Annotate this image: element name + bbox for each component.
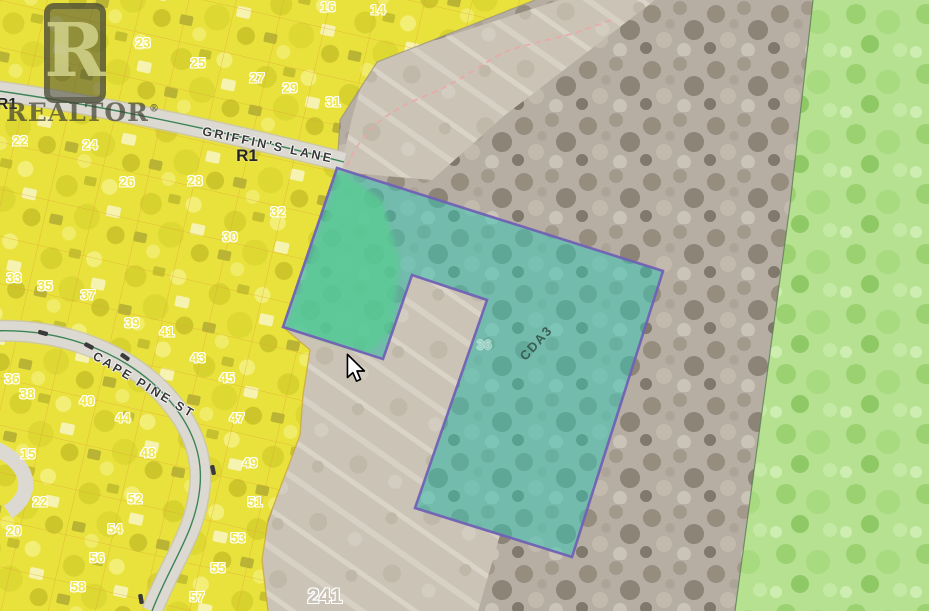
lot-number-label: 41 [159,325,174,340]
lot-number-label: 30 [222,230,237,245]
lot-number-label: 22 [12,134,27,149]
street-name-label: GRIFFIN'S LANE [201,124,335,166]
lot-number-label: 40 [79,394,94,409]
lot-number-label: 57 [189,590,204,605]
lot-number-label: 56 [89,551,104,566]
lot-number-label: 29 [282,81,297,96]
mouse-cursor-icon [346,353,368,383]
lot-number-label: 37 [80,288,95,303]
lot-number-label: 45 [219,371,234,386]
lot-number-label: 28 [187,174,202,189]
lot-number-label: 31 [325,95,340,110]
lot-number-label: 26 [119,175,134,190]
map-labels: 1614232527293122242628323033353739414345… [0,0,929,611]
lot-number-label: 14 [370,3,385,18]
lot-number-label: 25 [190,56,205,71]
lot-number-label: 15 [20,447,35,462]
lot-number-label: 51 [247,495,262,510]
lot-number-label: 20 [6,524,21,539]
lot-number-label: 52 [127,492,142,507]
lot-number-label: 24 [82,138,97,153]
lot-number-label: 49 [242,456,257,471]
lot-number-label: 22 [32,495,47,510]
lot-number-label: 36 [476,338,491,353]
lot-number-label: 39 [124,316,139,331]
lot-number-label: 47 [229,411,244,426]
map-viewport[interactable]: 1614232527293122242628323033353739414345… [0,0,929,611]
lot-number-label: 23 [135,36,150,51]
lot-number-label: 38 [19,387,34,402]
lot-number-label: 16 [320,0,335,15]
lot-number-label: 32 [270,205,285,220]
zoning-code-label: R1 [236,146,258,166]
street-name-label: CAPE PINE ST [90,349,197,421]
zoning-code-label: R1 [0,96,17,114]
lot-number-label: 36 [4,372,19,387]
lot-number-label: 54 [107,522,122,537]
lot-number-label: 44 [115,411,130,426]
lot-number-label: 33 [6,271,21,286]
lot-number-label: 53 [230,531,245,546]
lot-number-label: 43 [190,351,205,366]
lot-number-label: 55 [210,561,225,576]
lot-number-label: 35 [37,279,52,294]
lot-number-label: 58 [70,580,85,595]
zoning-code-label: CDA3 [517,323,556,364]
lot-number-label: 48 [140,446,155,461]
area-number-label: 241 [307,585,342,609]
lot-number-label: 27 [249,71,264,86]
